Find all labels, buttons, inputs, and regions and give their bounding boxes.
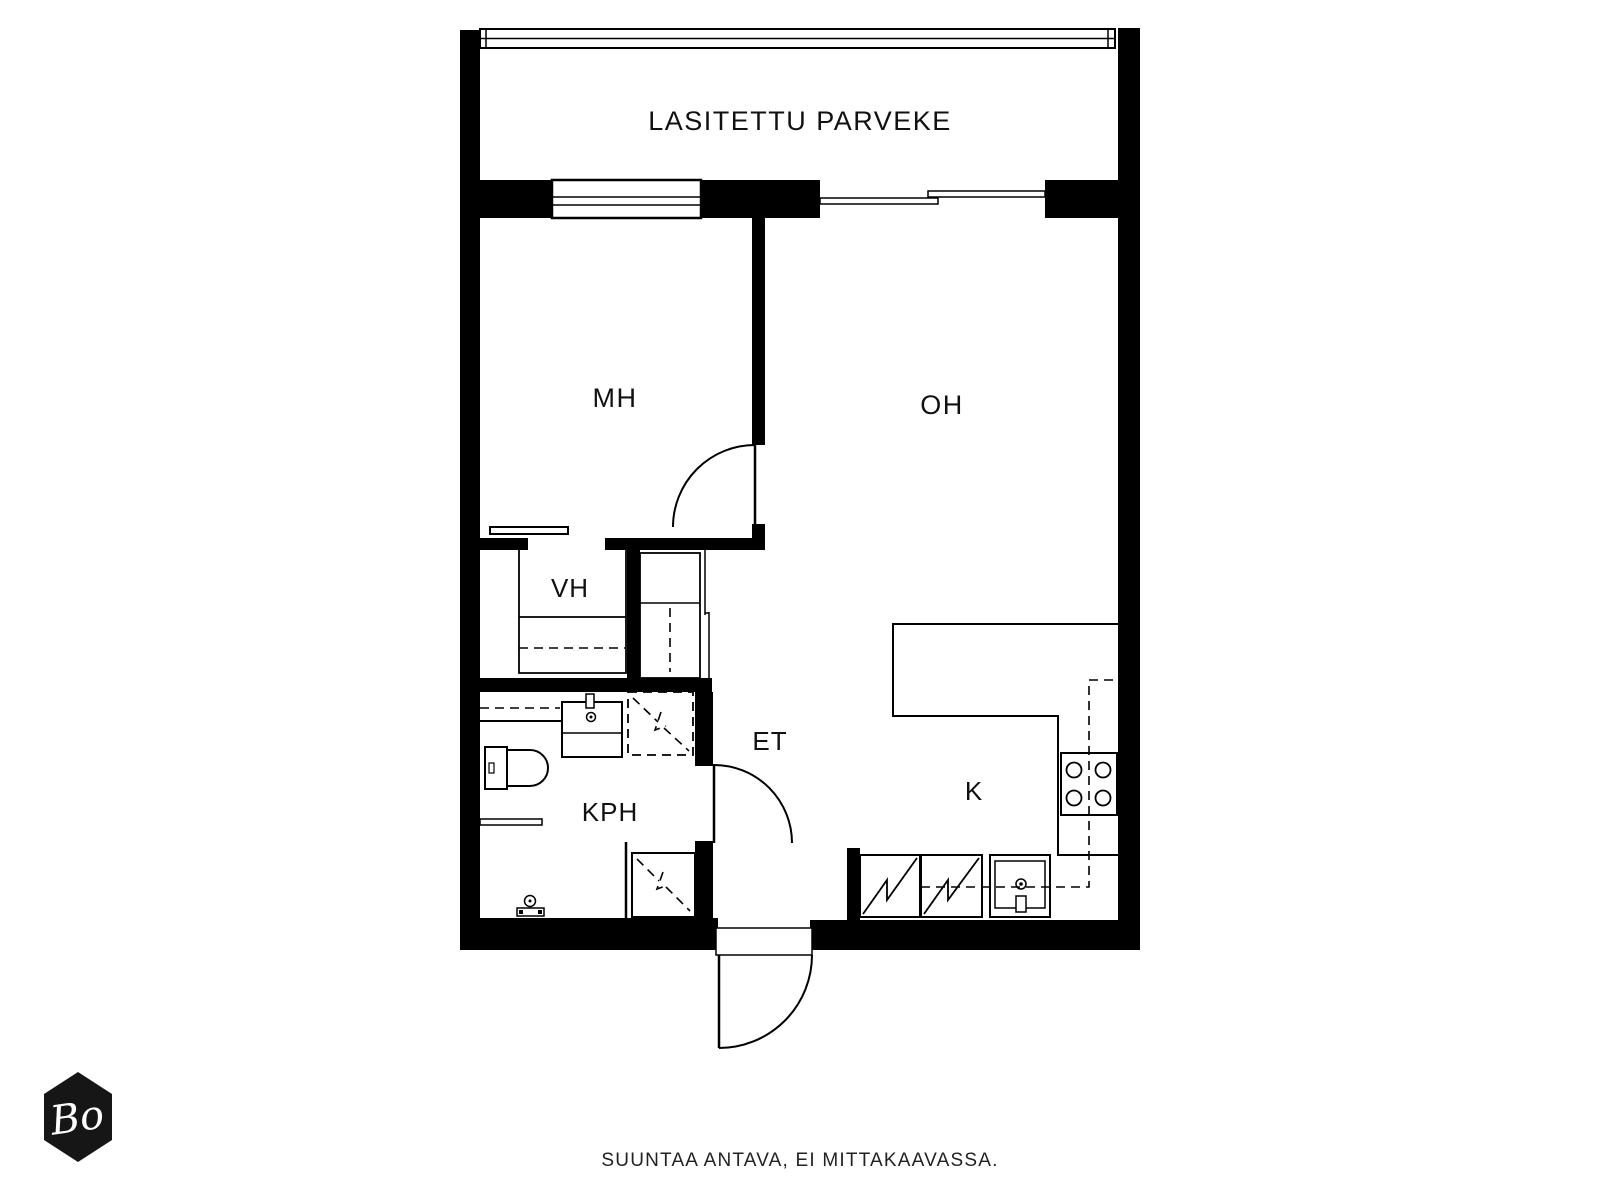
logo-text: Bo xyxy=(46,1092,106,1145)
logo: Bo xyxy=(44,1072,112,1162)
burner xyxy=(1067,763,1082,778)
toilet-bowl xyxy=(507,750,548,786)
floorplan-drawing: LASITETTU PARVEKE MH OH VH ET KPH K Bo S… xyxy=(0,0,1600,1200)
hall-cabinet xyxy=(640,548,709,678)
bedroom-door-arc xyxy=(673,445,755,527)
openings xyxy=(490,180,1045,534)
toilet xyxy=(485,747,548,789)
room-label-living: OH xyxy=(920,390,964,420)
walls xyxy=(460,28,1140,950)
room-label-balcony: LASITETTU PARVEKE xyxy=(648,106,952,136)
balcony xyxy=(480,29,1115,48)
wall-bottom-right xyxy=(810,920,1140,950)
bedroom-window xyxy=(552,180,701,218)
entrance-threshold xyxy=(716,928,812,955)
wall-bedroom-living xyxy=(752,218,765,445)
wall-right-exterior xyxy=(1118,28,1140,950)
room-label-hallway: ET xyxy=(752,726,787,756)
doors xyxy=(673,445,812,1048)
toilet-button xyxy=(489,763,494,773)
wall-balcony-band-left xyxy=(460,180,552,218)
kitchen-counter xyxy=(893,624,1118,855)
room-label-bathroom: KPH xyxy=(582,797,638,827)
shower xyxy=(628,692,693,755)
burner xyxy=(1067,791,1082,806)
burner xyxy=(1096,791,1111,806)
balcony-slider-panel-left xyxy=(820,198,938,204)
washing-machine xyxy=(632,853,695,917)
entrance-door-arc xyxy=(719,955,812,1048)
closet-sliding-door xyxy=(490,527,568,534)
kitchen-fixtures xyxy=(860,624,1118,917)
burner xyxy=(1096,763,1111,778)
caption-disclaimer: SUUNTAA ANTAVA, EI MITTAKAAVASSA. xyxy=(601,1150,998,1171)
wall-left-exterior xyxy=(460,30,480,950)
wall-balcony-band-mid xyxy=(701,180,820,218)
toilet-tank xyxy=(485,747,507,789)
entrance-door xyxy=(716,928,812,1048)
wall-balcony-band-right xyxy=(1045,180,1118,218)
bathroom-door xyxy=(695,765,792,843)
fridge xyxy=(860,855,920,917)
bedroom-door xyxy=(673,445,755,527)
wall-hall-kitchen-stub xyxy=(847,848,860,920)
balcony-slider-panel-right xyxy=(928,191,1045,197)
kitchen-sink xyxy=(990,855,1050,917)
room-label-closet: VH xyxy=(551,573,589,603)
wall-bedroom-closet xyxy=(460,538,528,550)
room-label-bedroom: MH xyxy=(593,383,638,413)
towel-rail xyxy=(480,819,542,825)
wall-bathroom-right-lower xyxy=(695,840,713,918)
wall-bathroom-right-upper xyxy=(695,692,713,767)
floorplan-page: LASITETTU PARVEKE MH OH VH ET KPH K Bo S… xyxy=(0,0,1600,1200)
wall-closet-bathroom xyxy=(460,678,712,692)
closet-fixtures xyxy=(519,548,626,673)
wall-closet-right xyxy=(627,548,640,678)
closet-outline xyxy=(519,548,626,673)
floor-drain xyxy=(517,896,544,917)
wall-bottom-left xyxy=(460,918,718,950)
bathroom-sink xyxy=(562,694,622,757)
room-label-kitchen: K xyxy=(965,776,983,806)
sink-faucet-stem xyxy=(586,694,594,708)
freezer xyxy=(921,855,982,917)
bathroom-door-arc xyxy=(714,765,792,843)
